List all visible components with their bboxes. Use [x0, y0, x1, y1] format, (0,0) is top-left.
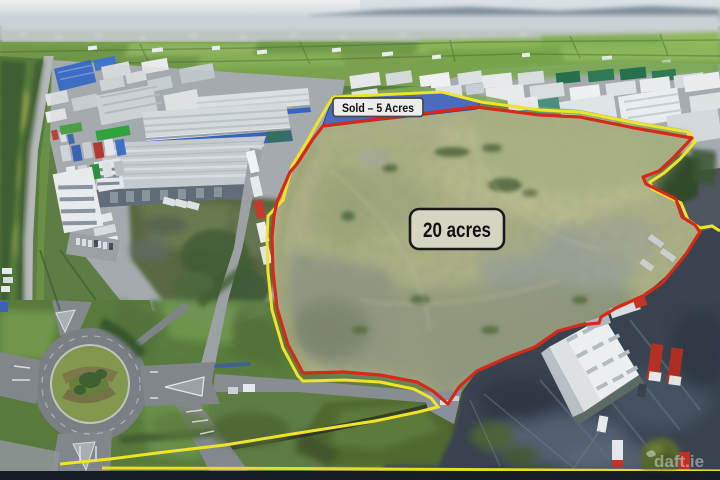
svg-text:20 acres: 20 acres [423, 219, 491, 242]
svg-text:Sold – 5 Acres: Sold – 5 Acres [342, 101, 414, 115]
svg-text:daft.ie: daft.ie [654, 452, 704, 471]
